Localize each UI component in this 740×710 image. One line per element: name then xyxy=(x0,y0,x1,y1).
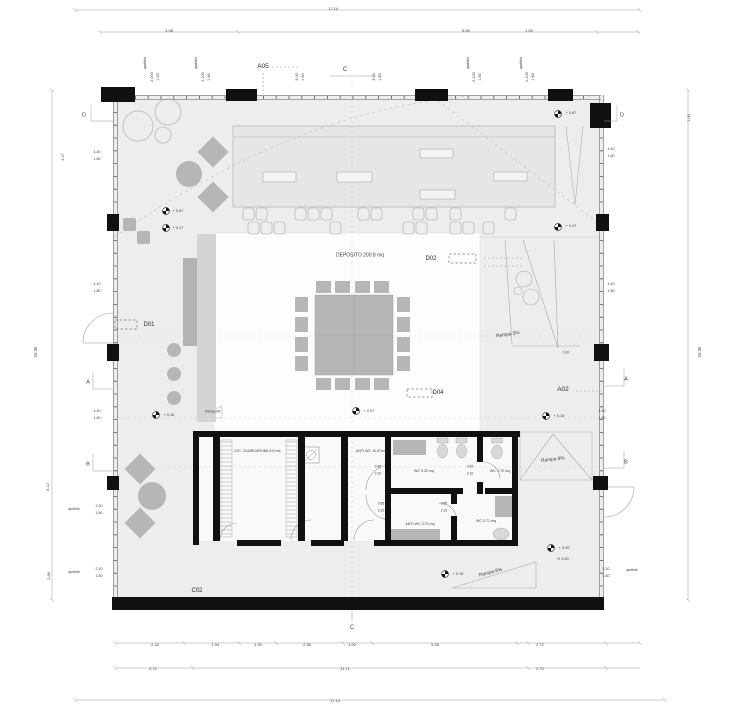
side-table xyxy=(123,218,136,231)
marker-c-top: C xyxy=(343,67,347,73)
dim-bot-242: 2.42 xyxy=(151,643,159,647)
marker-b-right: B xyxy=(624,460,628,466)
level-047-left: + 0.47 xyxy=(173,227,184,231)
dim-bot-130: 1.30 xyxy=(254,643,262,647)
dim-bot2-1171: 11.71 xyxy=(340,667,350,671)
callout-a02: A02 xyxy=(557,387,569,394)
win-left-2b: 1.80 xyxy=(94,290,101,294)
dim-left-427: 4.27 xyxy=(62,153,66,160)
marker-b-left: B xyxy=(86,462,90,468)
toilet xyxy=(492,445,503,459)
dim-left-612: 6.12 xyxy=(47,483,51,490)
marker-d-right: D xyxy=(620,113,624,119)
win-top-4a: 3.00 xyxy=(373,73,377,80)
dim-top-3-08: 3.08 xyxy=(165,29,173,33)
toilet xyxy=(438,444,448,458)
ramp-8-small-label: Rampa 8% xyxy=(205,410,221,413)
dim-left-288: 2.88 xyxy=(48,572,52,579)
marker-a-left: A xyxy=(86,380,90,386)
level-h350: H 3.50 xyxy=(557,558,568,562)
door-dim-4b: 2.10 xyxy=(441,509,448,512)
dim-bot-272a: 2.72 xyxy=(536,643,544,647)
apribile-right-1: apribile xyxy=(626,569,638,573)
dim-right-1630: 16.30 xyxy=(698,347,702,357)
marker-c-bottom: C xyxy=(350,625,354,631)
callout-d01: D01 xyxy=(143,322,154,328)
win-left-3b: 1.80 xyxy=(94,417,101,421)
win-left-2a: 4.40 xyxy=(94,283,101,287)
win-top-1a: 2.000 xyxy=(151,72,155,82)
reception-desk xyxy=(183,258,197,346)
win-right-2a: 4.40 xyxy=(608,283,615,287)
door-dim-2b: 2.10 xyxy=(467,472,474,475)
stool xyxy=(167,391,181,405)
win-top-2b: 1.80 xyxy=(208,73,212,80)
marker-d-left: D xyxy=(82,113,86,119)
bottom-wall xyxy=(112,597,604,610)
win-top-6b: 1.80 xyxy=(532,73,536,80)
wc-counter xyxy=(393,440,426,455)
room-wc-170: WC 1.70 mq xyxy=(490,470,510,474)
wardrobe-rack xyxy=(286,440,297,537)
win-left-4b: 1.80 xyxy=(96,512,103,516)
room-wc-520: WC 5.20 mq xyxy=(414,470,434,474)
level-047-right: + 0.47 xyxy=(566,225,577,229)
apribile-top-4: apribile xyxy=(520,57,524,69)
level-087-right: + 0.87 xyxy=(566,112,577,116)
toilet xyxy=(457,444,467,458)
room-anti-wc-370: ANTI-WC 3.70 mq xyxy=(405,523,434,527)
toilet xyxy=(493,528,509,540)
dim-bot-236: 2.36 xyxy=(303,643,311,647)
door-dim-1b: 2.10 xyxy=(375,472,382,475)
win-top-3b: 1.80 xyxy=(302,73,306,80)
win-right-3a: 4.40 xyxy=(599,410,606,414)
win-top-5b: 1.80 xyxy=(479,73,483,80)
level-000: + 0.00 xyxy=(559,547,570,551)
dim-bot2-272b: 2.72 xyxy=(536,667,544,671)
dim-top-1-00: 1.00 xyxy=(525,29,533,33)
callout-d02: D02 xyxy=(425,256,436,262)
level-007-center: + 0.07 xyxy=(364,410,375,414)
win-top-6a: 2.100 xyxy=(526,72,530,82)
lounge-round-table xyxy=(138,482,166,510)
win-right-3b: 1.80 xyxy=(599,417,606,421)
callout-d04: D04 xyxy=(432,390,443,396)
dim-overall-bottom: 17.14 xyxy=(330,699,340,703)
win-top-2a: 2.100 xyxy=(202,72,206,82)
win-left-5b: 1.80 xyxy=(96,575,103,579)
apribile-left-2: apribile xyxy=(68,571,80,575)
win-top-4b: 1.80 xyxy=(379,73,383,80)
win-right-1b: 1.80 xyxy=(608,155,615,159)
reception-counter xyxy=(197,234,216,422)
door-dim-4a: 0.85 xyxy=(441,502,448,505)
apribile-top-1: apribile xyxy=(144,57,148,69)
stool xyxy=(167,367,181,381)
apribile-left-1: apribile xyxy=(68,508,80,512)
lounge-round-table xyxy=(176,161,202,187)
dim-left-1630: 16.30 xyxy=(34,347,38,357)
door-dim-2a: 0.85 xyxy=(467,465,474,468)
callout-c02: C02 xyxy=(191,588,202,594)
win-left-3a: 4.40 xyxy=(94,410,101,414)
marker-a05: A05 xyxy=(257,64,269,71)
level-016-right: + 0.16 xyxy=(554,415,565,419)
room-guardaroba: LOC. GUARDAROBA 9.6 mq xyxy=(234,450,281,454)
apribile-top-3: apribile xyxy=(467,57,471,69)
marker-a-right: A xyxy=(624,377,628,383)
dim-right-100: 1.00 xyxy=(688,114,692,121)
dim-overall-top: 17.14 xyxy=(328,7,338,11)
room-deposito: DEPOSITO 200.8 mq xyxy=(336,254,384,259)
dim-bot2-272a: 2.72 xyxy=(149,667,157,671)
floor-plan-drawing xyxy=(0,0,740,710)
apribile-top-2: apribile xyxy=(195,57,199,69)
stage-area xyxy=(233,126,555,207)
win-left-4a: 2.20 xyxy=(96,505,103,509)
win-top-3a: 3.00 xyxy=(296,73,300,80)
dim-bot-100: 1.00 xyxy=(348,643,356,647)
win-left-1b: 1.80 xyxy=(94,158,101,162)
level-016-bottom: + 0.16 xyxy=(453,573,464,577)
wardrobe-rack xyxy=(221,440,232,537)
win-right-1a: 4.40 xyxy=(608,148,615,152)
side-table xyxy=(137,231,150,244)
stool xyxy=(167,343,181,357)
door-dim-1a: 0.85 xyxy=(375,465,382,468)
win-left-1a: 4.40 xyxy=(94,151,101,155)
win-top-1b: 1.80 xyxy=(157,73,161,80)
room-anti-wc: ANTI WC 10.87mq xyxy=(356,450,386,454)
win-top-5a: 2.100 xyxy=(473,72,477,82)
room-wc-371: WC 3.71 mq xyxy=(476,520,496,524)
door-dim-3b: 2.10 xyxy=(378,509,385,512)
door-dim-3a: 0.85 xyxy=(378,502,385,505)
win-right-4a: 2.20 xyxy=(603,568,610,572)
win-left-5a: 2.20 xyxy=(96,568,103,572)
floor-plan-canvas: 17.143.088.551.00apribile2.0001.80apribi… xyxy=(0,0,740,710)
dim-right-small-100: 1.00 xyxy=(563,351,569,354)
dim-bot-194: 1.94 xyxy=(211,643,219,647)
dim-top-8-55: 8.55 xyxy=(462,29,470,33)
level-087-left: + 0.87 xyxy=(173,210,184,214)
win-right-4b: 1.80 xyxy=(603,575,610,579)
dim-bot-508: 5.08 xyxy=(431,643,439,647)
level-016-left: + 0.16 xyxy=(164,414,175,418)
win-right-2b: 1.80 xyxy=(608,290,615,294)
